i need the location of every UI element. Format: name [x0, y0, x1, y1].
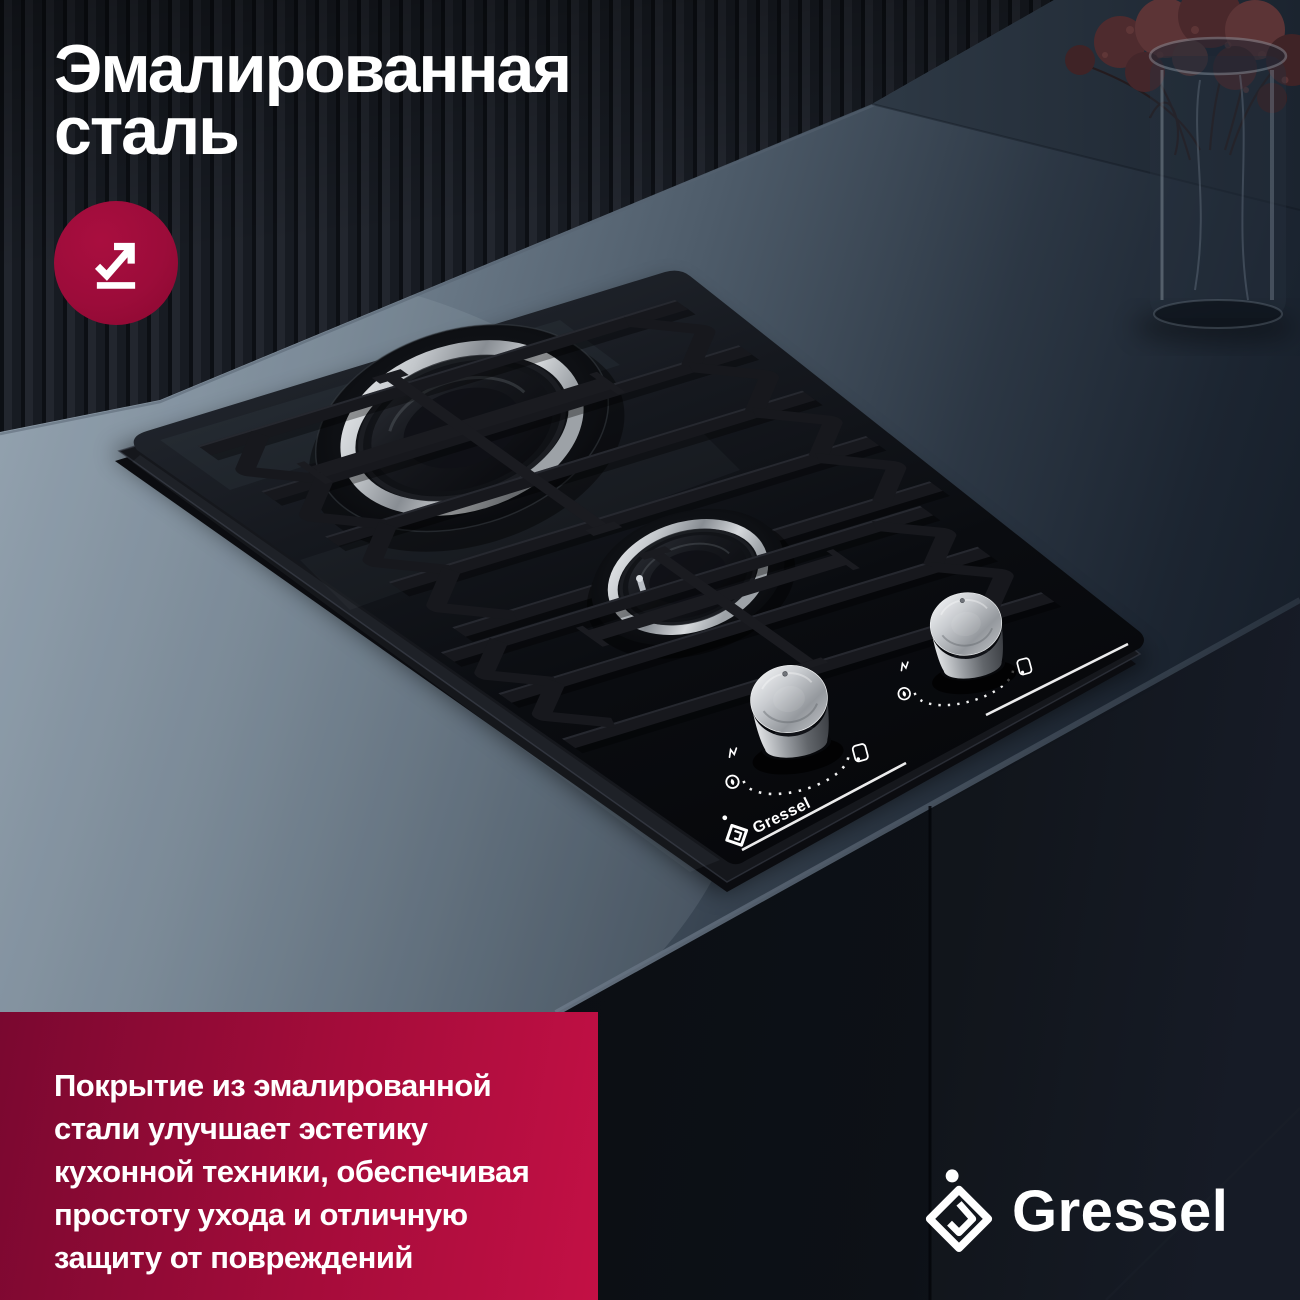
- brand-logo: Gressel: [916, 1168, 1228, 1256]
- arrow-growth-underline-icon: [83, 230, 149, 296]
- description-panel: Покрытие из эмалированной стали улучшает…: [0, 1012, 598, 1300]
- description-line: кухонной техники, обеспечивая: [54, 1150, 598, 1193]
- feature-badge: [54, 201, 178, 325]
- description-line: стали улучшает эстетику: [54, 1107, 598, 1150]
- brand-name: Gressel: [1012, 1168, 1228, 1256]
- description-line: защиту от повреждений: [54, 1236, 598, 1279]
- headline: Эмалированная сталь: [54, 38, 570, 162]
- description-line: Покрытие из эмалированной: [54, 1064, 598, 1107]
- headline-line-2: сталь: [54, 100, 570, 162]
- page-root: Gressel Эмалированная сталь Покрытие из …: [0, 0, 1300, 1300]
- gressel-diamond-g-icon: [916, 1168, 1002, 1256]
- glass-vase: [1150, 38, 1286, 328]
- description-line: простоту ухода и отличную: [54, 1193, 598, 1236]
- headline-line-1: Эмалированная: [54, 38, 570, 100]
